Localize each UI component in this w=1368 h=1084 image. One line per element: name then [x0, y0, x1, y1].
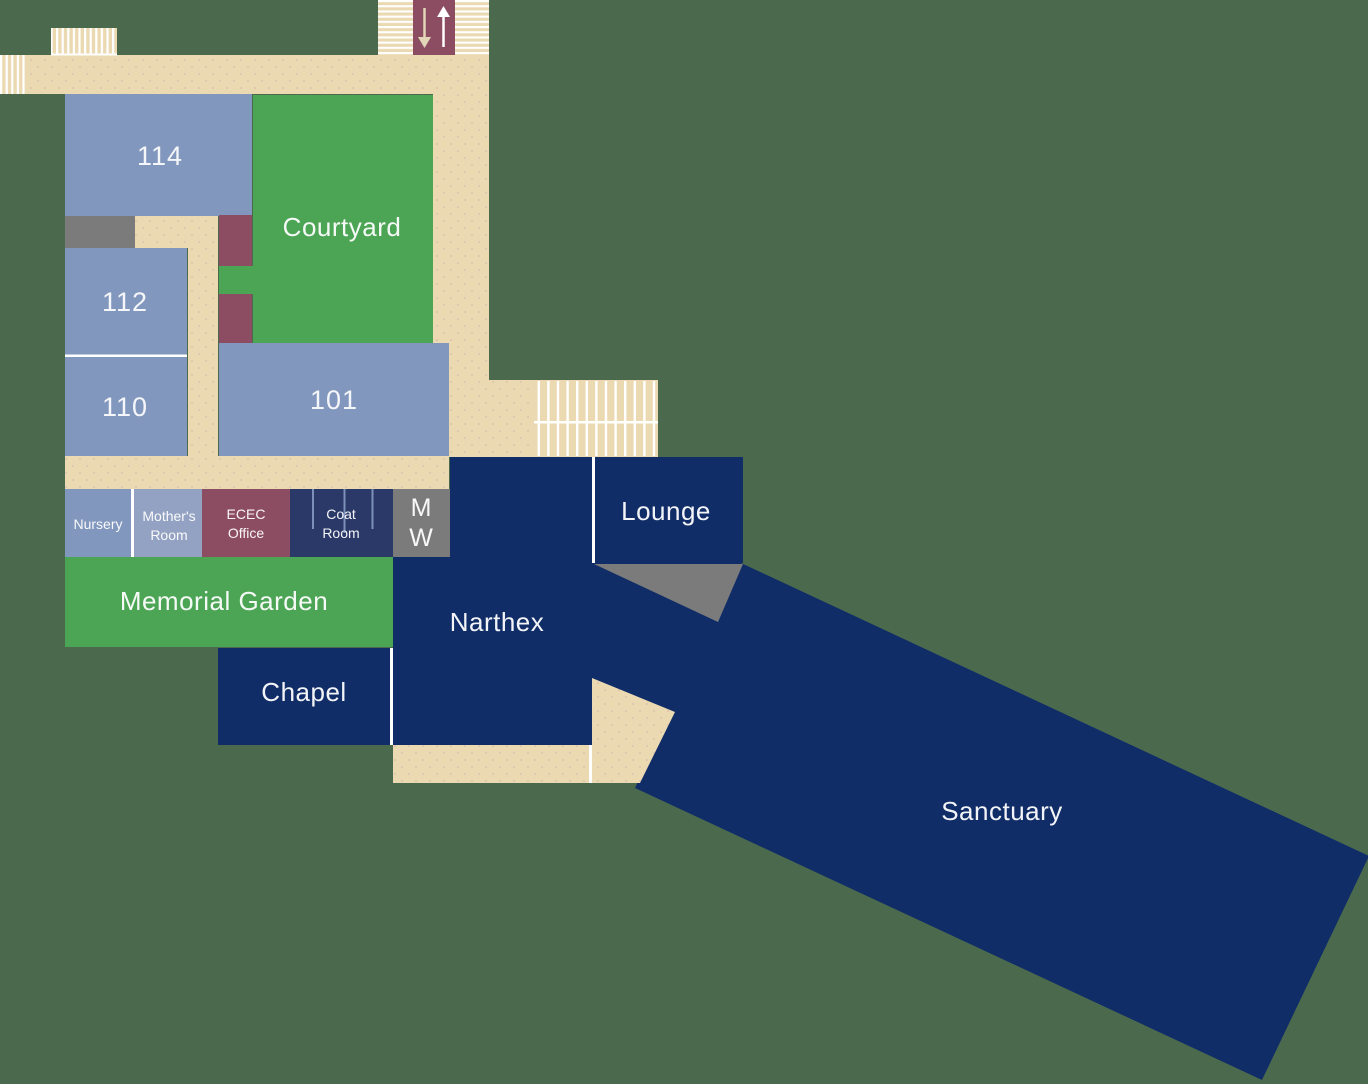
coat-room-label-line1: Coat	[326, 506, 356, 522]
room-112-label: 112	[102, 287, 148, 317]
courtyard-notch	[219, 266, 255, 294]
corridor-top-hall	[0, 55, 489, 94]
memorial-garden-label: Memorial Garden	[120, 586, 328, 616]
floor-plan-canvas: 114 Courtyard 112 110 101 Nursery Mother…	[0, 0, 1368, 1084]
elevator-box	[413, 0, 455, 55]
stairs-main-mid-landing	[534, 421, 658, 424]
floor-plan: 114 Courtyard 112 110 101 Nursery Mother…	[0, 0, 1368, 1084]
south-strip-divider	[589, 745, 592, 783]
mothers-room-label-line1: Mother's	[142, 508, 195, 524]
stairs-main-icon	[534, 381, 658, 456]
ecec-office-label-line2: Office	[228, 525, 265, 541]
coat-rack-divider	[372, 489, 374, 529]
ecec-office-label-line1: ECEC	[227, 506, 266, 522]
room-narthex-upper	[450, 457, 592, 558]
nursery-label: Nursery	[73, 516, 122, 532]
room-110-label: 110	[102, 392, 148, 422]
stairs-top-left-edge	[51, 54, 117, 56]
corridor-lower-hall	[65, 456, 449, 489]
elevator	[413, 0, 455, 55]
coat-room-label-line2: Room	[322, 525, 359, 541]
lounge-label: Lounge	[621, 496, 711, 526]
stairs-top-left-icon	[51, 28, 117, 54]
room-101-label: 101	[310, 385, 358, 415]
restroom-m-label: M	[411, 494, 432, 522]
courtyard-label: Courtyard	[283, 212, 402, 242]
room-ecec-office	[202, 489, 290, 557]
chapel-label: Chapel	[261, 677, 346, 707]
room-114-label: 114	[137, 141, 183, 171]
courtyard-pillar-south	[219, 294, 252, 343]
room-112-110-divider	[65, 355, 187, 358]
corridor-mid-horizontal	[135, 216, 218, 248]
sanctuary-label: Sanctuary	[941, 796, 1063, 826]
coat-rack-divider	[312, 489, 314, 529]
corridor-east-hall	[433, 94, 489, 381]
courtyard-pillar-north	[219, 215, 252, 266]
corridor-mid-vertical	[188, 248, 218, 456]
corridor-south-strip	[393, 745, 589, 783]
stairs-west-icon	[0, 55, 28, 94]
room-narthex-main	[393, 557, 592, 745]
narthex-label: Narthex	[450, 607, 545, 637]
nursery-mothers-divider	[131, 489, 134, 557]
room-coat-room	[290, 489, 393, 557]
narthex-lounge-divider	[592, 457, 595, 563]
mothers-room-label-line2: Room	[150, 527, 187, 543]
utility-closet	[65, 216, 135, 248]
chapel-narthex-divider	[390, 648, 394, 745]
restroom-w-label: W	[409, 524, 433, 552]
